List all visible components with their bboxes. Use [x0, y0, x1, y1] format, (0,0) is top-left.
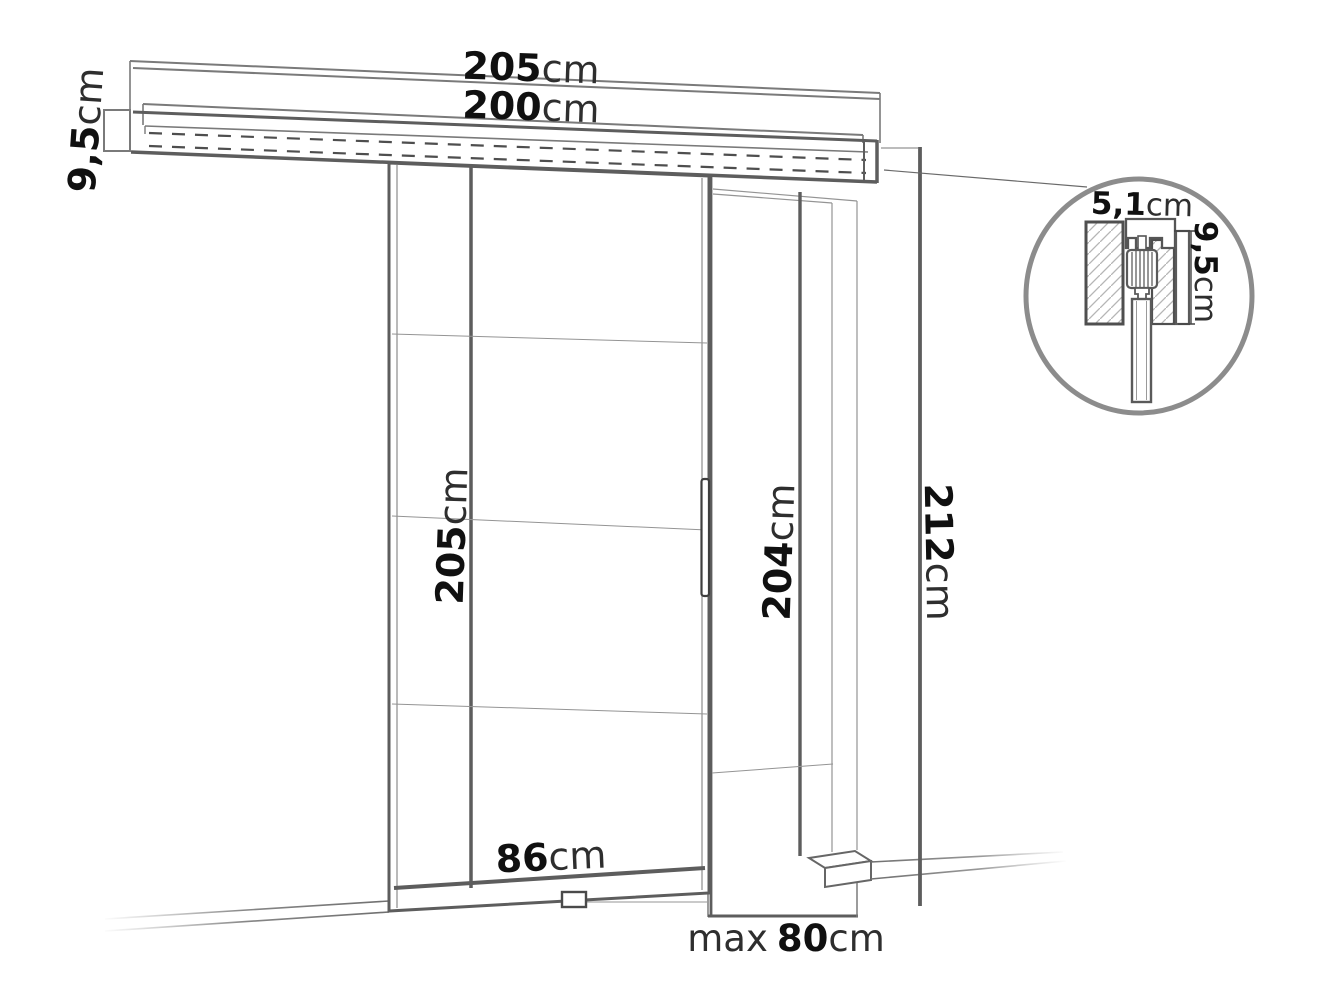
skirting-line-upper: [871, 852, 1063, 862]
door-section-bar: [1132, 299, 1151, 402]
callout-leader-line: [884, 170, 1087, 187]
label-opening-height: 204cm: [755, 483, 804, 622]
right-wall: [881, 147, 920, 906]
label-detail-track-width: 5,1cm: [1090, 186, 1193, 225]
sliding-door-dimension-diagram: 205cm 200cm 9,5cm 205cm 86cm 204cm 212cm…: [0, 0, 1334, 1000]
label-door-height: 205cm: [428, 467, 477, 606]
label-overall-height: 212cm: [916, 483, 962, 621]
label-door-width: 86cm: [495, 833, 608, 882]
floor-line-upper: [105, 901, 389, 919]
door-handle: [702, 479, 710, 596]
label-track-profile-height: 9,5cm: [60, 66, 113, 194]
skirting-line-lower: [871, 861, 1066, 879]
dimension-max-width: [708, 883, 858, 917]
opening-floor-line: [712, 764, 833, 773]
floor-lines-left: [105, 901, 389, 931]
floor-guide: [562, 892, 586, 907]
label-track-inner-length: 200cm: [462, 83, 601, 132]
lintel-edge-near: [713, 194, 832, 203]
label-opening-max-width: max80cm: [687, 917, 885, 960]
wall-section-hatched: [1086, 222, 1123, 324]
label-detail-track-height: 9,5cm: [1187, 221, 1223, 323]
diagram-canvas: 205cm 200cm 9,5cm 205cm 86cm 204cm 212cm…: [0, 0, 1334, 1000]
floor-line-lower: [105, 912, 389, 931]
